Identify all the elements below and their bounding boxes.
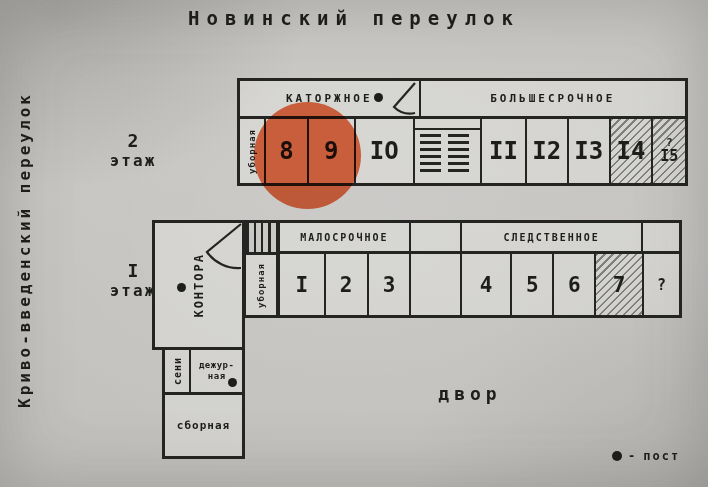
section-sledstvennoe-label: СЛЕДСТВЕННОЕ: [504, 232, 600, 243]
room-11[interactable]: II: [480, 119, 525, 183]
room-1-label: I: [296, 273, 309, 297]
courtyard-label: двор: [395, 383, 545, 404]
legend: - пост: [612, 449, 680, 463]
room-seni[interactable]: сени: [165, 350, 189, 392]
room-4[interactable]: 4: [460, 254, 510, 315]
stairs-steps-right: [448, 134, 469, 176]
post-dot-icon: [177, 283, 186, 292]
post-dot-icon: [374, 93, 383, 102]
room-sbornaya[interactable]: сборная: [162, 392, 245, 459]
room-5-label: 5: [526, 273, 539, 297]
room-sbornaya-label: сборная: [177, 419, 230, 432]
room-15[interactable]: ? I5: [651, 119, 685, 183]
seni-dezhurnaya-row: сени дежур- ная: [162, 347, 245, 395]
room-3-label: 3: [383, 273, 396, 297]
room-kontora[interactable]: КОНТОРА: [152, 220, 245, 350]
header-blank-cell: [409, 223, 461, 251]
floor2-label: 2 этаж: [78, 130, 188, 170]
room-7[interactable]: 7: [594, 254, 642, 315]
floor1-cells: I 2 3 4 5 6 7 ?: [280, 254, 679, 315]
floor2-word: этаж: [78, 151, 188, 170]
floor1-building: МАЛОСРОЧНОЕ СЛЕДСТВЕННОЕ I 2 3 4 5: [277, 220, 682, 318]
section-malosrochnoe-label: МАЛОСРОЧНОЕ: [300, 232, 388, 243]
room-11-label: II: [489, 137, 518, 165]
street-label-top: Новинский переулок: [0, 7, 708, 29]
room-dezhurnaya[interactable]: дежур- ная: [189, 350, 242, 392]
stairs-steps-left: [420, 134, 441, 176]
room-10-label: IO: [370, 137, 399, 165]
room-7-label: 7: [613, 273, 626, 297]
room-14[interactable]: I4: [609, 119, 652, 183]
door-arc-icon: [391, 82, 417, 115]
floor-plan-page: Новинский переулок Криво-введенский пере…: [0, 0, 708, 487]
stairs-icon: [243, 220, 279, 255]
room-15-label: I5: [660, 149, 678, 165]
room-dezhurnaya-label-line1: дежур-: [199, 360, 235, 371]
room-12[interactable]: I2: [525, 119, 567, 183]
room-2-label: 2: [340, 273, 353, 297]
room-ubornaya-floor1[interactable]: уборная: [243, 252, 279, 318]
floor2-number: 2: [78, 130, 188, 151]
door-arc-icon: [201, 222, 243, 270]
post-dot-icon: [612, 451, 622, 461]
room-3[interactable]: 3: [367, 254, 410, 315]
room-13[interactable]: I3: [567, 119, 609, 183]
room-4-label: 4: [480, 273, 493, 297]
room-2[interactable]: 2: [324, 254, 367, 315]
section-malosrochnoe: МАЛОСРОЧНОЕ: [280, 223, 409, 251]
header-blank-cell: [641, 223, 679, 251]
room-1[interactable]: I: [280, 254, 324, 315]
room-seni-label: сени: [172, 357, 183, 385]
post-dot-icon: [228, 378, 237, 387]
stairs-icon: [413, 119, 480, 183]
stairs-landing: [415, 119, 480, 130]
section-bolshesrochnoe-label: БОЛЬШЕСРОЧНОЕ: [490, 92, 615, 105]
floor1-header: МАЛОСРОЧНОЕ СЛЕДСТВЕННОЕ: [280, 223, 679, 254]
room-13-label: I3: [574, 137, 603, 165]
corridor-cell: [409, 254, 459, 315]
section-bolshesrochnoe: БОЛЬШЕСРОЧНОЕ: [419, 81, 685, 116]
street-label-left: Криво-введенский переулок: [5, 51, 45, 449]
legend-separator: -: [628, 449, 637, 463]
section-sledstvennoe: СЛЕДСТВЕННОЕ: [460, 223, 640, 251]
room-10[interactable]: IO: [354, 119, 414, 183]
room-unknown-label: ?: [657, 276, 666, 294]
room-dezhurnaya-label-line2: ная: [208, 371, 226, 382]
highlight-circle: [254, 102, 361, 209]
room-12-label: I2: [532, 137, 561, 165]
room-unknown[interactable]: ?: [642, 254, 679, 315]
room-ubornaya-floor1-label: уборная: [256, 263, 266, 308]
legend-label: пост: [643, 449, 680, 463]
room-5[interactable]: 5: [510, 254, 552, 315]
room-6-label: 6: [568, 273, 581, 297]
room-6[interactable]: 6: [552, 254, 594, 315]
room-14-label: I4: [617, 137, 646, 165]
